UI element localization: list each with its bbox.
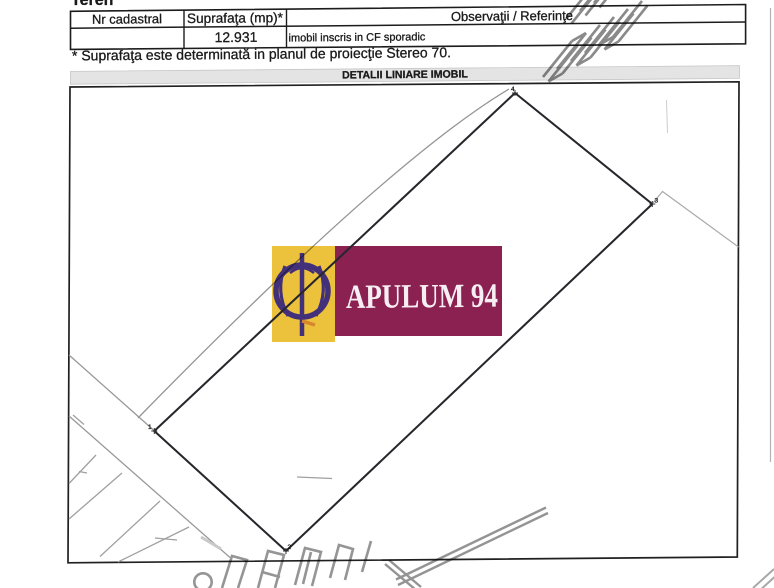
svg-text:1: 1 xyxy=(148,424,152,431)
svg-text:Teren: Teren xyxy=(71,0,113,9)
svg-text:4: 4 xyxy=(511,86,515,93)
svg-text:Nr cadastral: Nr cadastral xyxy=(92,11,162,27)
svg-text:DETALII LINIARE IMOBIL: DETALII LINIARE IMOBIL xyxy=(342,68,468,81)
svg-text:Suprafaţa (mp)*: Suprafaţa (mp)* xyxy=(187,10,284,26)
svg-text:3: 3 xyxy=(655,198,659,205)
svg-text:2: 2 xyxy=(288,544,292,551)
svg-text:* Suprafaţa este determinată i: * Suprafaţa este determinată in planul d… xyxy=(72,44,451,63)
svg-text:APULUM 94: APULUM 94 xyxy=(346,278,498,316)
svg-text:Observaţii / Referinţe: Observaţii / Referinţe xyxy=(451,8,573,24)
svg-text:imobil inscris in CF sporadic: imobil inscris in CF sporadic xyxy=(288,31,426,44)
svg-text:12.931: 12.931 xyxy=(214,29,257,45)
